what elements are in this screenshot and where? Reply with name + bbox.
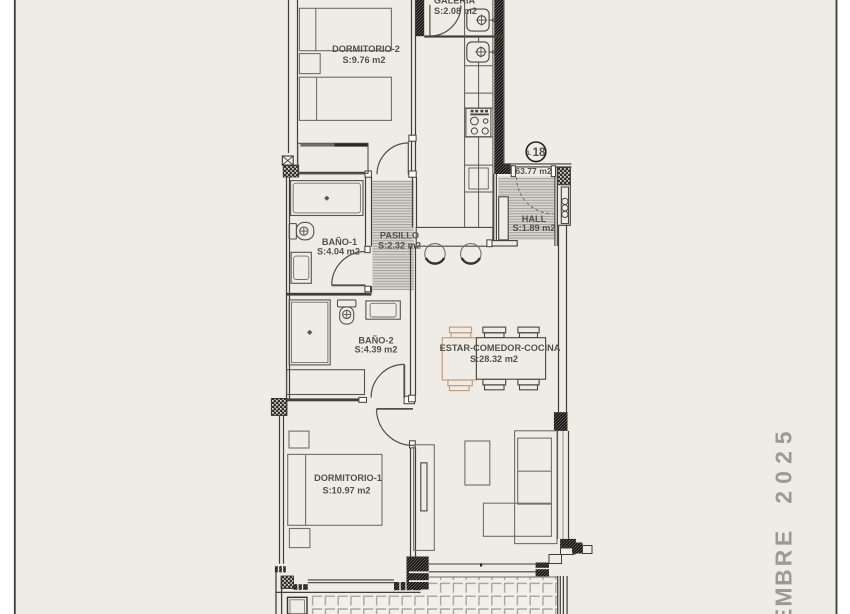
svg-text:S:1.89 m2: S:1.89 m2 [513, 223, 556, 233]
svg-text:R: R [771, 549, 797, 566]
svg-text:5: 5 [771, 431, 797, 444]
svg-text:E: E [771, 609, 797, 614]
svg-text:E: E [771, 531, 797, 546]
svg-text:GALERIA: GALERIA [434, 0, 476, 6]
svg-text:ESTAR-COMEDOR-COCINA: ESTAR-COMEDOR-COCINA [440, 343, 561, 353]
svg-text:S:4.39 m2: S:4.39 m2 [355, 345, 398, 355]
svg-text:S:2.32 m2: S:2.32 m2 [378, 241, 421, 251]
svg-text:0: 0 [771, 471, 797, 484]
svg-text:S:10.97 m2: S:10.97 m2 [322, 486, 370, 496]
svg-text:63.77 m2: 63.77 m2 [515, 166, 552, 176]
svg-text:DORMITORIO-2: DORMITORIO-2 [332, 44, 400, 54]
svg-text:2: 2 [771, 491, 797, 504]
svg-text:PASILLO: PASILLO [380, 230, 419, 240]
svg-text:18: 18 [533, 147, 546, 159]
svg-text:S:9.76 m2: S:9.76 m2 [343, 55, 386, 65]
svg-text:S:4.04 m2: S:4.04 m2 [317, 246, 360, 256]
svg-text:2: 2 [771, 451, 797, 464]
svg-text:1.: 1. [526, 150, 532, 157]
svg-text:DORMITORIO-1: DORMITORIO-1 [314, 473, 382, 483]
svg-text:B: B [771, 569, 797, 586]
svg-text:S:28.32 m2: S:28.32 m2 [470, 354, 518, 364]
svg-text:S:2.08 m2: S:2.08 m2 [434, 6, 477, 16]
svg-text:M: M [771, 587, 797, 606]
